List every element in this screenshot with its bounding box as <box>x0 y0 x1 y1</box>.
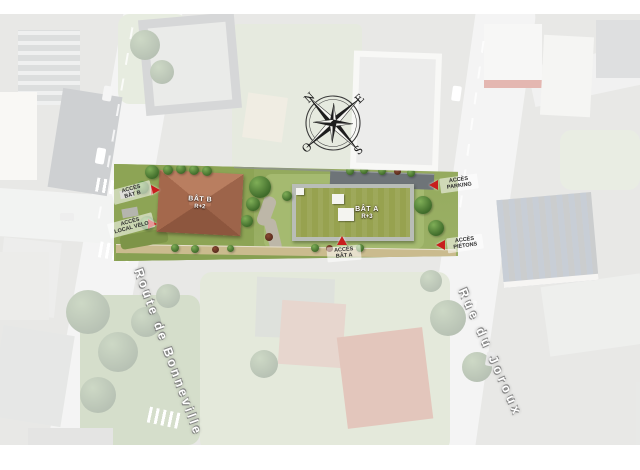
tree-icon <box>66 290 110 334</box>
parking-lot <box>541 273 640 356</box>
building-bat-a: BÂT A R+3 <box>292 184 414 241</box>
tree-icon <box>428 220 444 236</box>
building-bat-b: BÂT B R+2 <box>156 170 243 236</box>
access-arrow-icon <box>436 240 445 250</box>
car <box>451 85 462 101</box>
access-arrow-icon <box>429 180 438 190</box>
building-block <box>496 192 598 288</box>
page-margin <box>0 445 640 470</box>
building-bat-b-label: BÂT B R+2 <box>156 170 243 236</box>
shrub-icon <box>191 245 199 253</box>
tree-icon <box>145 165 159 179</box>
building-block <box>540 35 594 118</box>
building-name: BÂT B <box>188 195 212 203</box>
building-name: BÂT A <box>355 206 379 213</box>
site-plan-canvas: BÂT B R+2 BÂT A R+3 <box>0 0 640 470</box>
tree-icon <box>189 165 199 175</box>
shrub-icon <box>171 244 179 252</box>
shrub-icon <box>265 233 273 241</box>
tree-icon <box>246 197 260 211</box>
building-block <box>0 252 49 320</box>
tree-icon <box>163 165 173 175</box>
dirt-patch <box>242 92 288 142</box>
project-site-plan: BÂT B R+2 BÂT A R+3 <box>114 162 458 261</box>
house-block <box>337 327 434 429</box>
shrub-icon <box>311 244 319 252</box>
compass-south-label: S <box>351 143 365 158</box>
tree-icon <box>98 332 138 372</box>
tree-icon <box>202 166 212 176</box>
tree-icon <box>150 60 174 84</box>
green-area <box>560 130 640 190</box>
compass-rose-icon: N E S O <box>287 77 379 169</box>
tree-icon <box>282 191 292 201</box>
tree-icon <box>420 270 442 292</box>
tree-icon <box>249 176 271 198</box>
tree-icon <box>130 30 160 60</box>
tree-icon <box>241 215 253 227</box>
building-block <box>596 20 640 78</box>
page-margin <box>0 0 640 14</box>
roof-detail <box>484 80 542 88</box>
shrub-icon <box>227 245 234 252</box>
building-block <box>484 24 542 88</box>
house-block <box>278 300 346 368</box>
tree-icon <box>414 196 432 214</box>
access-arrow-icon <box>337 236 347 245</box>
building-floors: R+2 <box>194 204 205 211</box>
access-label-bat-a: ACCÈS BÂT A <box>326 245 361 263</box>
shrub-icon <box>212 246 219 253</box>
building-floors: R+3 <box>361 214 372 220</box>
building-bat-a-label: BÂT A R+3 <box>292 184 414 241</box>
tree-icon <box>250 350 278 378</box>
tree-icon <box>80 377 116 413</box>
tree-icon <box>430 300 466 336</box>
car <box>60 213 74 221</box>
tree-icon <box>156 284 180 308</box>
building-block <box>0 92 37 180</box>
